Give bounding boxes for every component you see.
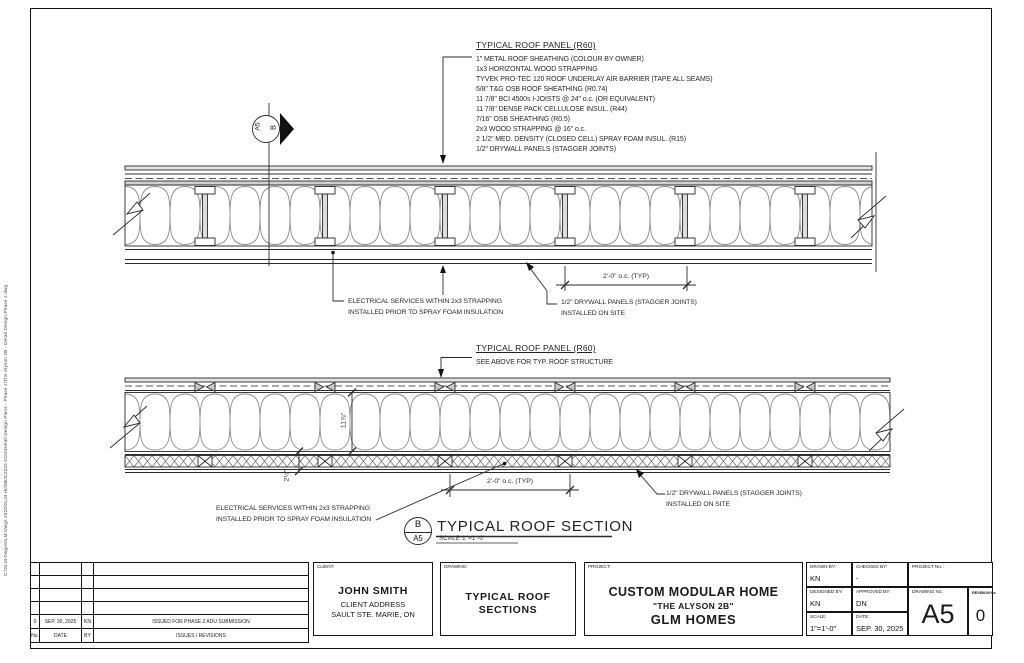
plot-stamp: C:\GLM Dwgs\GLM Dwgs 2025\GLM HOMES\2025… [3, 31, 8, 576]
drawing-scale: SCALE 1"=1'-0" [439, 536, 485, 542]
table-row [31, 563, 309, 576]
rev-by: KN [82, 615, 94, 629]
date-value: SEP. 30, 2025 [856, 624, 903, 633]
dimension-spacing-top-label: 2'-0" o.c. (TYP) [565, 273, 687, 280]
dimension-joist-depth-label: 11⅞" [341, 397, 348, 445]
spec-subtitle: SEE ABOVE FOR TYP. ROOF STRUCTURE [476, 358, 613, 368]
electrical-note-bottom: ELECTRICAL SERVICES WITHIN 2x3 STRAPPING… [216, 504, 371, 525]
roof-spec-list: TYPICAL ROOF PANEL (R60) 1" METAL ROOF S… [476, 40, 712, 155]
spec-line: 1x3 HORIZONTAL WOOD STRAPPING [476, 65, 712, 75]
spec-line: TYVEK PRO-TEC 120 ROOF UNDERLAY AIR BARR… [476, 75, 712, 85]
drawing-name-2: SECTIONS [441, 604, 575, 616]
spec-line: 11 7/8" DENSE PACK CELLULOSE INSUL. (R44… [476, 105, 712, 115]
drawing-label: DRAWING: [444, 565, 468, 570]
date-cell: DATE: SEP. 30, 2025 [852, 612, 908, 636]
spec-line: 2 1/2" MED. DENSITY (CLOSED CELL) SPRAY … [476, 135, 712, 145]
client-block: CLIENT: JOHN SMITH CLIENT ADDRESS SAULT … [313, 562, 433, 636]
section-marker-letter: B [269, 118, 278, 138]
rev-empty-cell [31, 576, 40, 589]
spec-title: TYPICAL ROOF PANEL (R60) [476, 40, 712, 50]
rev-date: SEP. 30, 2025 [40, 615, 82, 629]
drywall-note-bottom: 1/2" DRYWALL PANELS (STAGGER JOINTS) INS… [666, 489, 802, 510]
checked-by-cell: CHECKED BY: - [852, 562, 908, 587]
spec-line: 2x3 WOOD STRAPPING @ 16" o.c. [476, 125, 712, 135]
section-marker-sheet: A5 [255, 116, 262, 138]
electrical-note-top: ELECTRICAL SERVICES WITHIN 2x3 STRAPPING… [348, 297, 503, 318]
project-block: PROJECT: CUSTOM MODULAR HOME "THE ALYSON… [584, 562, 803, 636]
revision-no-value: 0 [969, 606, 992, 626]
rev-date-header: DATE [40, 629, 82, 643]
project-label: PROJECT: [588, 565, 610, 570]
rev-desc-header: ISSUES / REVISIONS [94, 629, 309, 643]
spec-line: 5/8" T&G OSB ROOF SHEATHING (R0.74) [476, 85, 712, 95]
rev-desc: ISSUED FOR PHASE 2 ADU SUBMISSION [94, 615, 309, 629]
title-marker-sheet: A5 [404, 534, 432, 543]
project-name-1: CUSTOM MODULAR HOME [585, 585, 802, 599]
project-no-cell: PROJECT No. : [908, 562, 993, 587]
client-address-2: SAULT STE. MARIE, ON [314, 610, 432, 619]
scale-cell: SCALE: 1"=1'-0" [806, 612, 852, 636]
checked-by-value: - [856, 574, 859, 583]
spec-line: 1/2" DRYWALL PANELS (STAGGER JOINTS) [476, 145, 712, 155]
drywall-note-top: 1/2" DRYWALL PANELS (STAGGER JOINTS) INS… [561, 298, 697, 319]
project-name-3: GLM HOMES [585, 612, 802, 627]
title-marker-letter: B [404, 519, 432, 530]
drawn-by-cell: DRAWN BY: KN [806, 562, 852, 587]
drawn-by-value: KN [810, 574, 820, 583]
dimension-foam-depth-label: 2½" [284, 454, 291, 498]
project-name-2: "THE ALYSON 2B" [585, 601, 802, 611]
revision-row: 0 SEP. 30, 2025 KN ISSUED FOR PHASE 2 AD… [31, 615, 309, 629]
designed-by-value: KN [810, 599, 820, 608]
drawing-no-cell: DRAWING No. A5 [908, 587, 968, 636]
scale-value: 1"=1'-0" [810, 624, 836, 633]
drawing-title: TYPICAL ROOF SECTION [437, 518, 633, 535]
spec-line: 7/16" OSB SHEATHING (R0.5) [476, 115, 712, 125]
approved-by-cell: APPROVED BY: DN [852, 587, 908, 612]
dimension-spacing-bottom-label: 2'-0" o.c. (TYP) [444, 478, 576, 485]
revision-header-row: No. DATE BY ISSUES / REVISIONS [31, 629, 309, 643]
client-label: CLIENT: [317, 565, 334, 570]
rev-no: 0 [31, 615, 40, 629]
rev-empty-cell [31, 589, 40, 602]
table-row [31, 589, 309, 602]
table-row [31, 602, 309, 615]
table-row [31, 576, 309, 589]
roof-spec-reference: TYPICAL ROOF PANEL (R60) SEE ABOVE FOR T… [476, 343, 613, 368]
drawing-block: DRAWING: TYPICAL ROOF SECTIONS [440, 562, 576, 636]
rev-by-header: BY [82, 629, 94, 643]
designed-by-cell: DESIGNED BY: KN [806, 587, 852, 612]
rev-empty-cell [31, 602, 40, 615]
spec-line: 1" METAL ROOF SHEATHING (COLOUR BY OWNER… [476, 55, 712, 65]
revisions-table: 0 SEP. 30, 2025 KN ISSUED FOR PHASE 2 AD… [30, 562, 309, 643]
drawing-name-1: TYPICAL ROOF [441, 591, 575, 603]
revision-no-cell: REVISION No. 0 [968, 587, 993, 636]
spec-title: TYPICAL ROOF PANEL (R60) [476, 343, 613, 353]
client-name: JOHN SMITH [314, 585, 432, 597]
drawing-no-value: A5 [909, 599, 967, 630]
client-address-1: CLIENT ADDRESS [314, 600, 432, 609]
drawing-sheet: C:\GLM Dwgs\GLM Dwgs 2025\GLM HOMES\2025… [0, 0, 1024, 663]
rev-no-header: No. [31, 629, 40, 643]
rev-empty-cell [31, 563, 40, 576]
spec-line: 11 7/8" BCI 4500s I-JOISTS @ 24" o.c. (O… [476, 95, 712, 105]
approved-by-value: DN [856, 599, 867, 608]
